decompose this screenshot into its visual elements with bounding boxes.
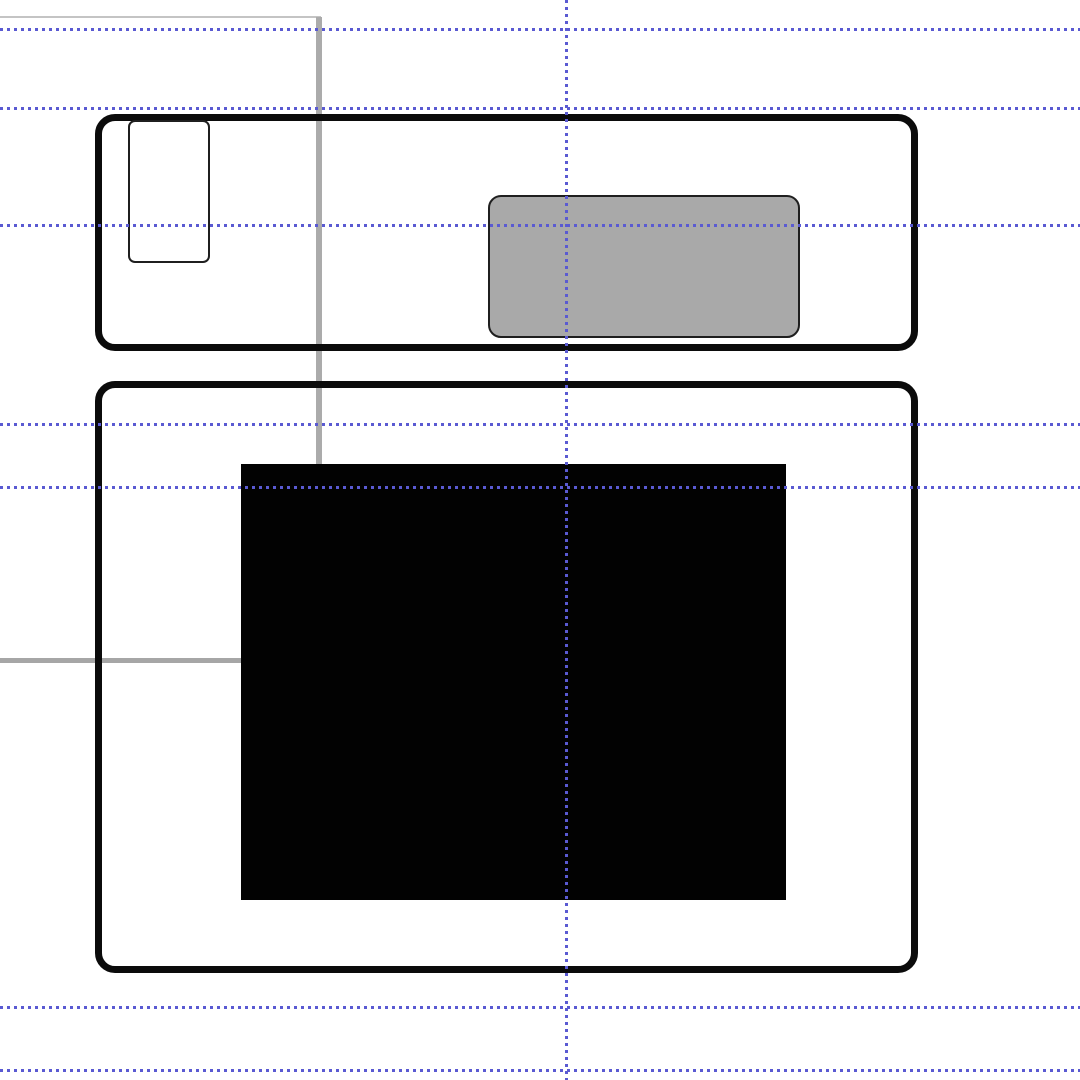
horizontal-guide-1[interactable] (0, 28, 1080, 31)
horizontal-guide-7[interactable] (0, 1069, 1080, 1072)
horizontal-guide-4[interactable] (0, 423, 1080, 426)
drawing-canvas[interactable] (0, 0, 1080, 1080)
horizontal-guide-5[interactable] (0, 486, 1080, 489)
horizontal-guide-2[interactable] (0, 107, 1080, 110)
clipped-rect-top-edge[interactable] (0, 16, 321, 18)
gray-rounded-block[interactable] (488, 195, 800, 338)
vertical-guide-1[interactable] (565, 0, 568, 1080)
small-outlined-card[interactable] (128, 120, 210, 263)
horizontal-guide-6[interactable] (0, 1006, 1080, 1009)
black-image-block[interactable] (241, 464, 786, 900)
horizontal-guide-3[interactable] (0, 224, 1080, 227)
